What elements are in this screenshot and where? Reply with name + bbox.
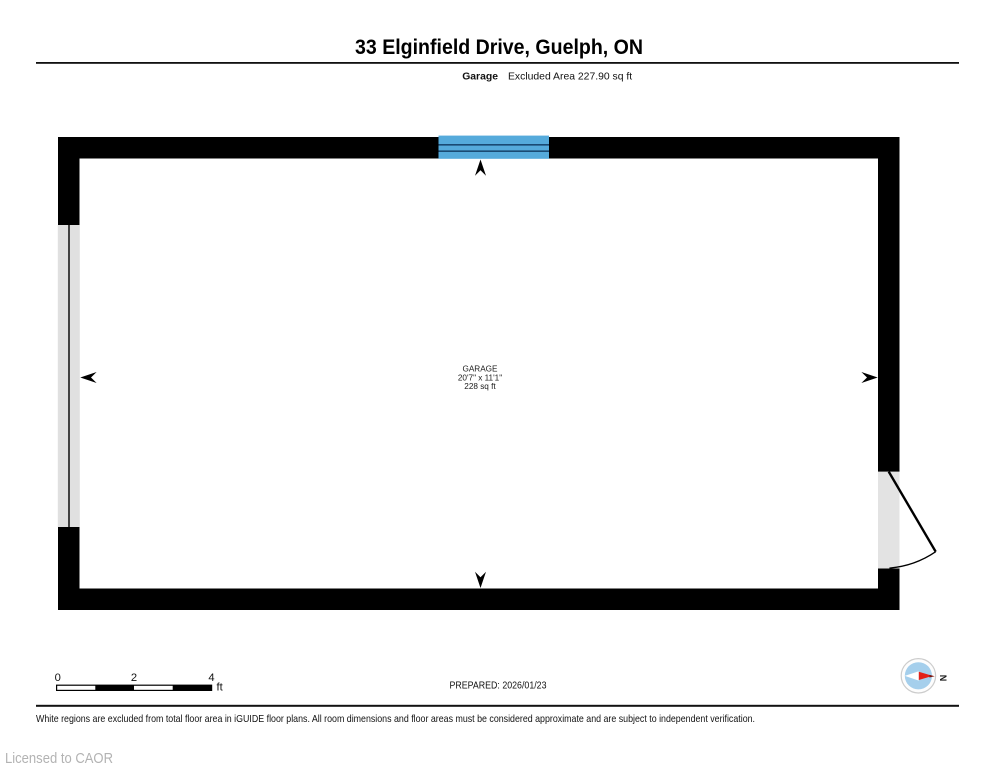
svg-text:Licensed to CAOR: Licensed to CAOR <box>5 751 113 767</box>
svg-text:Excluded Area 227.90 sq ft: Excluded Area 227.90 sq ft <box>508 72 632 83</box>
svg-text:4: 4 <box>208 672 214 684</box>
svg-text:GARAGE: GARAGE <box>462 365 498 374</box>
svg-text:0: 0 <box>55 672 61 684</box>
svg-text:33 Elginfield Drive, Guelph, O: 33 Elginfield Drive, Guelph, ON <box>355 35 643 59</box>
svg-text:2: 2 <box>131 672 137 684</box>
svg-text:N: N <box>938 675 948 682</box>
svg-text:PREPARED: 2026/01/23: PREPARED: 2026/01/23 <box>450 681 547 692</box>
svg-text:20'7" x 11'1": 20'7" x 11'1" <box>458 373 502 382</box>
svg-text:ft: ft <box>217 682 224 694</box>
svg-text:Garage: Garage <box>462 72 498 83</box>
svg-text:White regions are excluded fro: White regions are excluded from total fl… <box>36 713 755 725</box>
svg-text:228 sq ft: 228 sq ft <box>464 382 496 391</box>
